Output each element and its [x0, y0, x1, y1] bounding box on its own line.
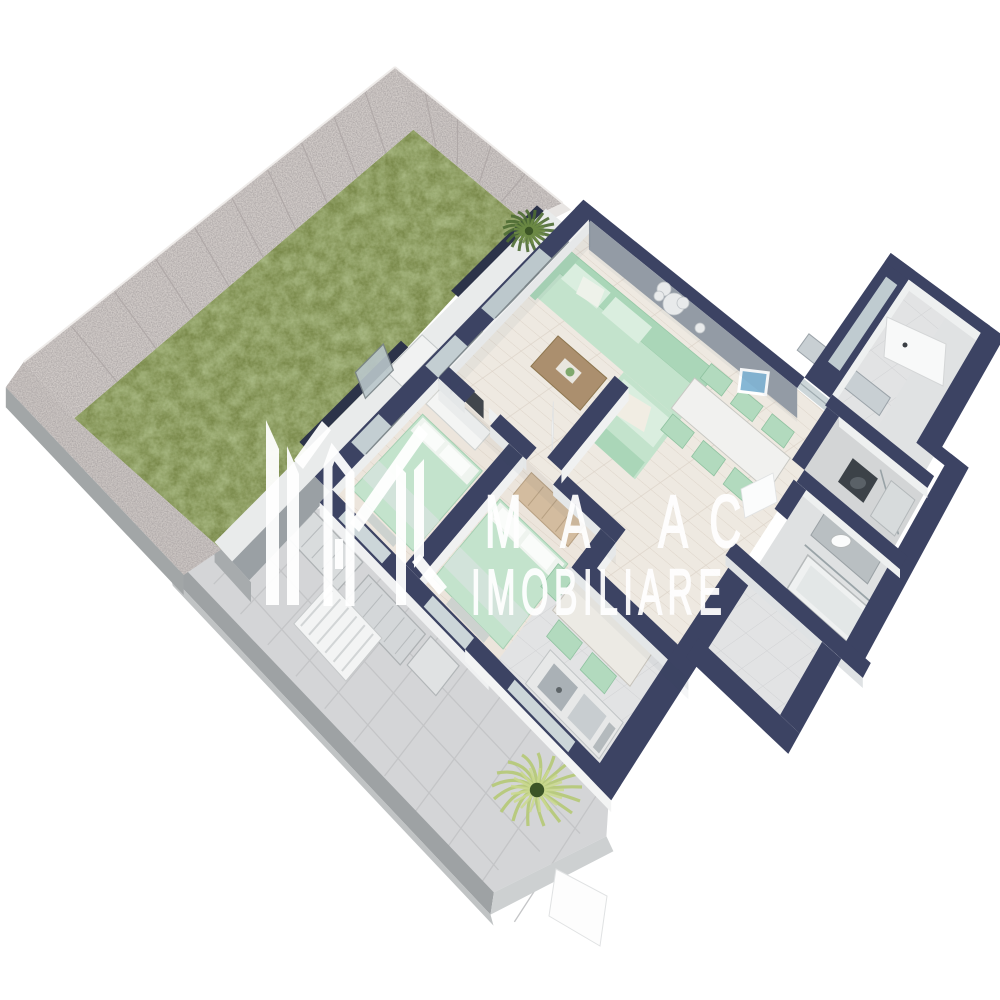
- svg-text:IMOBILIARE: IMOBILIARE: [471, 556, 727, 628]
